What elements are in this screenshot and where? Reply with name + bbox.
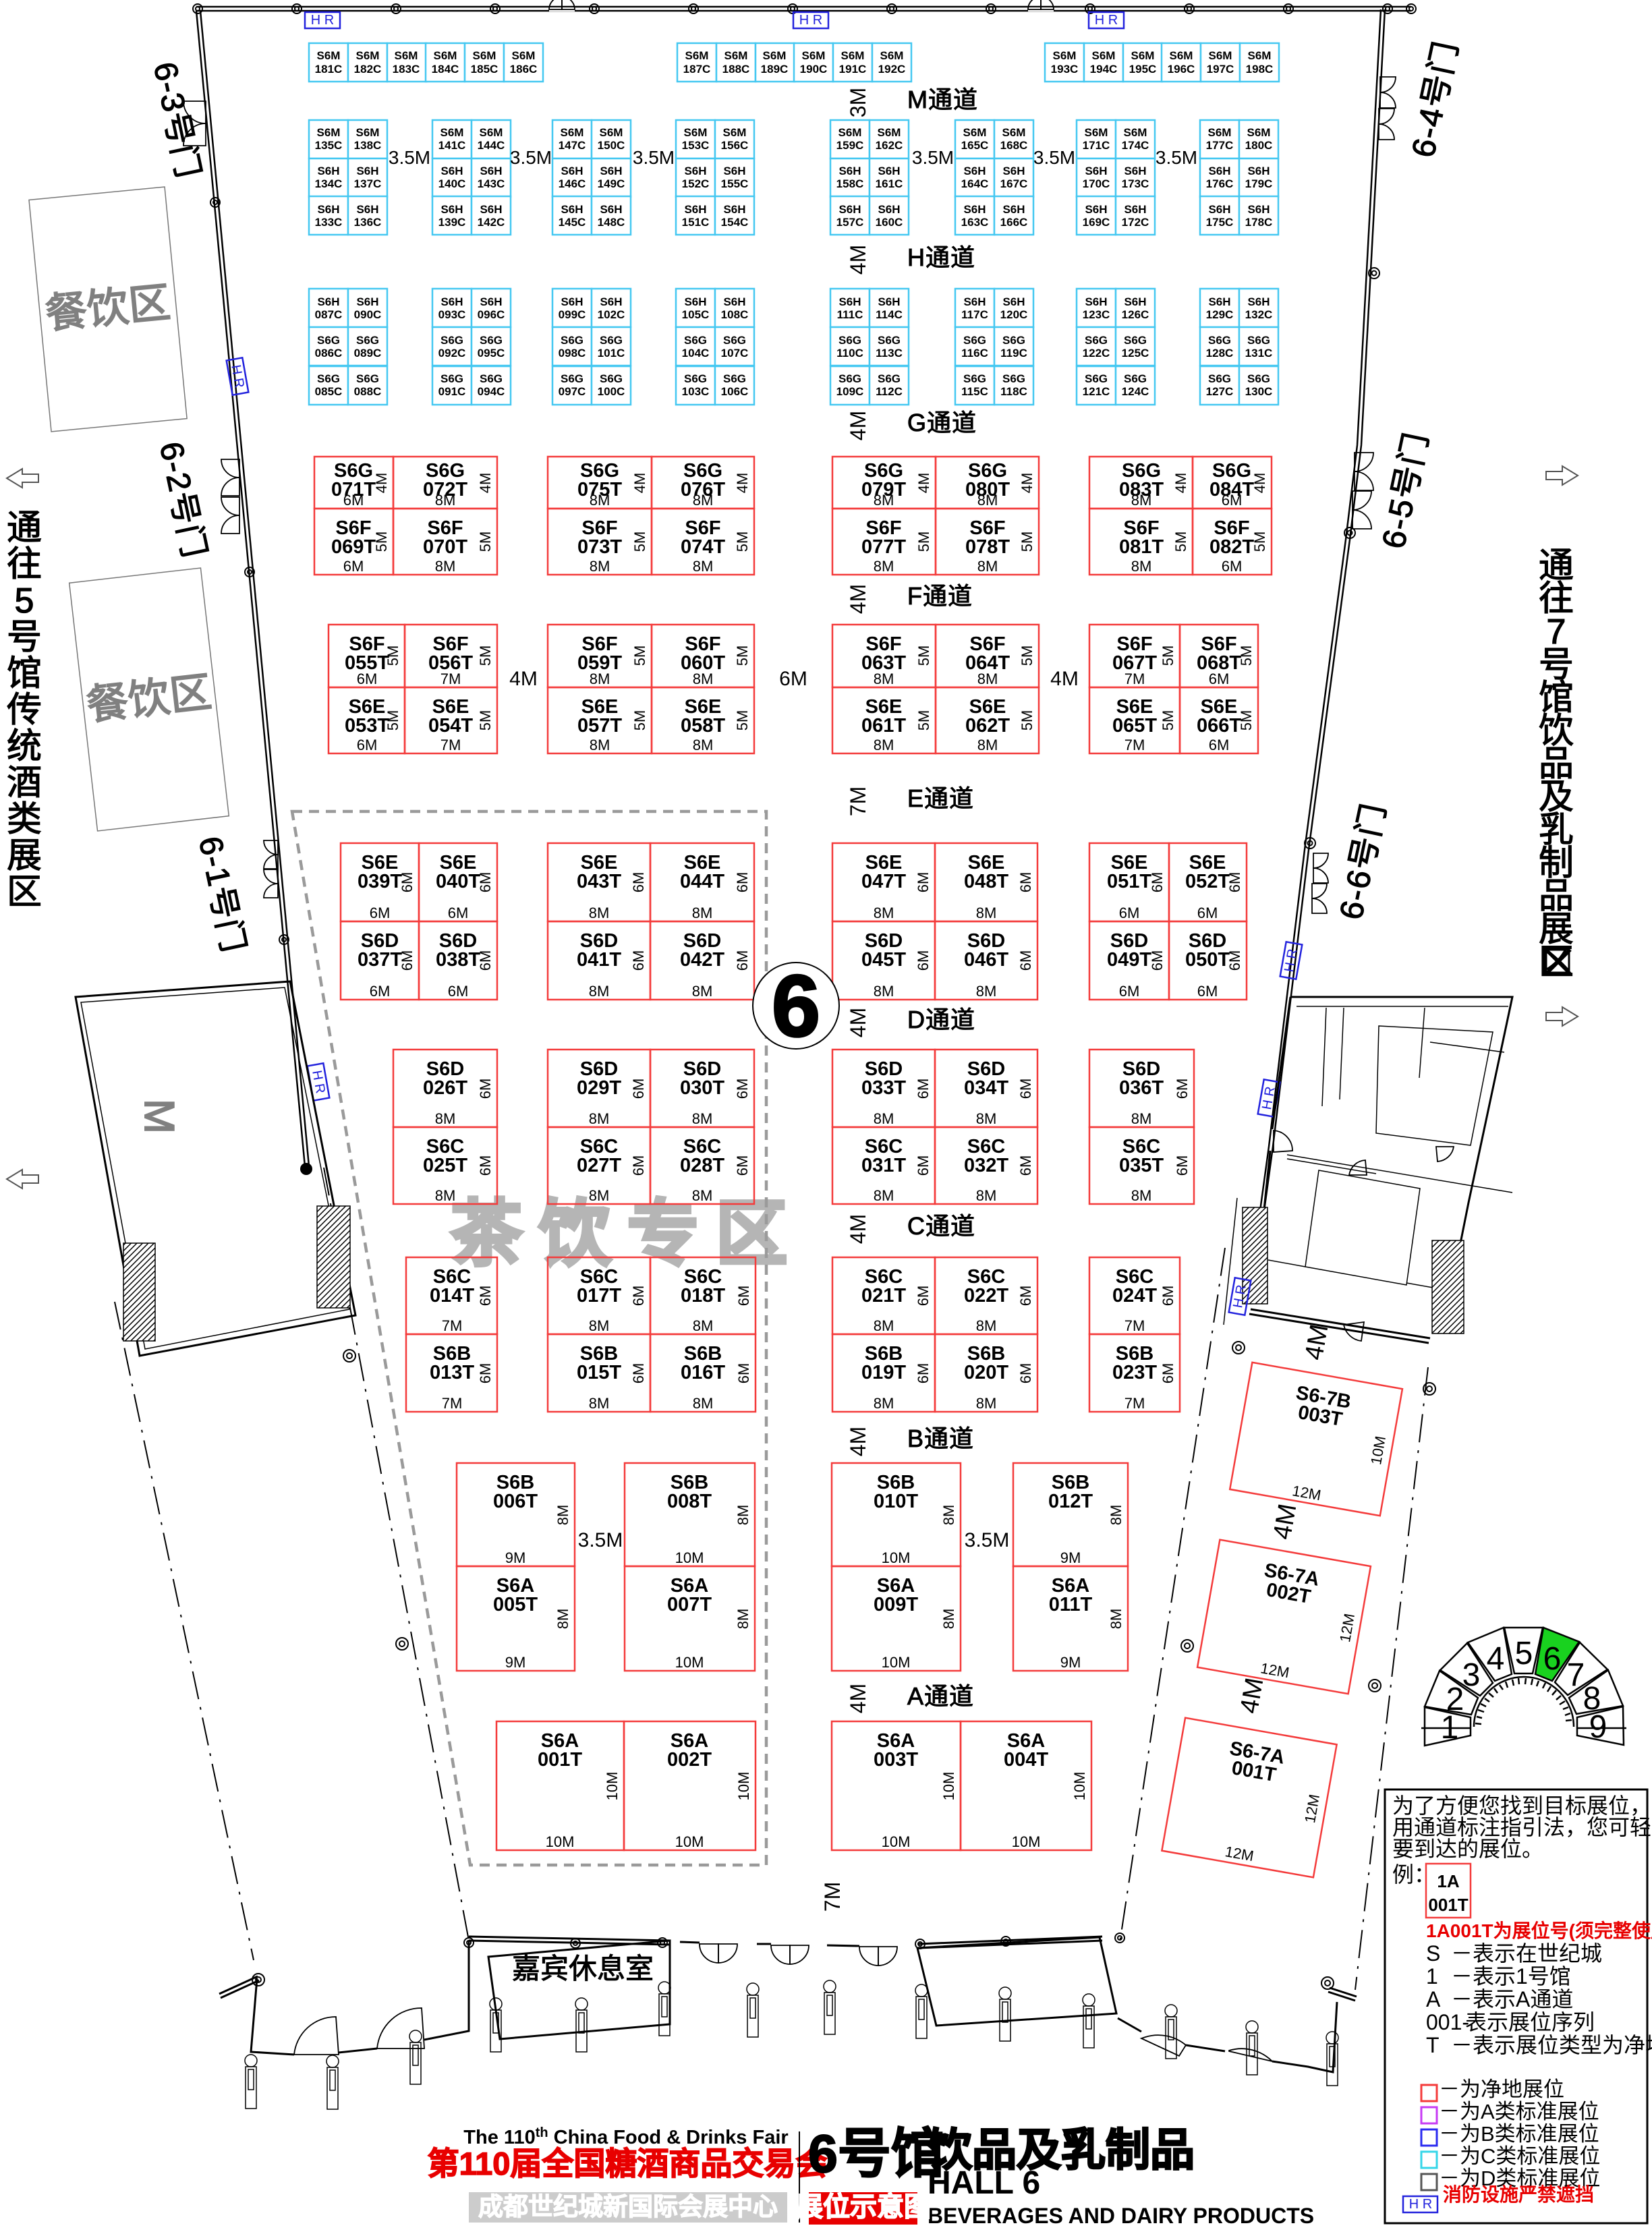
svg-text:9M: 9M xyxy=(505,1549,526,1566)
svg-text:106C: 106C xyxy=(721,385,749,398)
svg-text:183C: 183C xyxy=(393,63,420,76)
svg-text:130C: 130C xyxy=(1245,385,1273,398)
svg-text:6M: 6M xyxy=(1119,983,1140,1000)
svg-text:4M: 4M xyxy=(846,1684,870,1713)
svg-text:8M: 8M xyxy=(589,983,610,1000)
svg-text:5M: 5M xyxy=(1238,646,1255,666)
svg-text:8M: 8M xyxy=(692,905,713,921)
svg-text:6M: 6M xyxy=(1174,1079,1191,1099)
svg-text:M通道: M通道 xyxy=(907,86,978,113)
svg-text:BEVERAGES AND DAIRY PRODUCTS: BEVERAGES AND DAIRY PRODUCTS xyxy=(928,2204,1314,2228)
svg-text:162C: 162C xyxy=(876,139,903,152)
svg-text:S6G: S6G xyxy=(838,334,861,347)
svg-text:006T: 006T xyxy=(493,1491,538,1512)
svg-text:H R: H R xyxy=(311,13,334,28)
svg-text:048T: 048T xyxy=(964,871,1008,892)
svg-text:S6M: S6M xyxy=(1208,126,1232,139)
svg-text:－表示在世纪城: －表示在世纪城 xyxy=(1451,1941,1602,1966)
svg-text:传: 传 xyxy=(7,691,42,730)
svg-text:7M: 7M xyxy=(440,670,461,687)
svg-text:191C: 191C xyxy=(839,63,867,76)
svg-text:6M: 6M xyxy=(1209,670,1230,687)
svg-text:S6G: S6G xyxy=(356,372,379,385)
svg-text:S6H: S6H xyxy=(1208,165,1230,177)
svg-text:8M: 8M xyxy=(1108,1609,1124,1630)
svg-text:S6H: S6H xyxy=(723,203,745,216)
svg-text:001T: 001T xyxy=(538,1749,582,1771)
svg-text:S6G: S6G xyxy=(723,372,746,385)
svg-text:S6H: S6H xyxy=(1085,203,1107,216)
svg-text:8M: 8M xyxy=(874,737,894,753)
svg-text:6M: 6M xyxy=(1119,905,1140,921)
svg-text:H R: H R xyxy=(799,13,822,28)
svg-text:S6G: S6G xyxy=(356,334,379,347)
svg-text:6M: 6M xyxy=(399,872,416,893)
svg-text:8M: 8M xyxy=(976,983,997,1000)
svg-text:086C: 086C xyxy=(315,347,343,360)
svg-text:S6H: S6H xyxy=(317,165,339,177)
svg-text:8M: 8M xyxy=(693,558,714,575)
svg-text:025T: 025T xyxy=(423,1155,467,1176)
svg-text:8M: 8M xyxy=(590,737,610,753)
svg-text:S6G: S6G xyxy=(878,334,901,347)
svg-text:8M: 8M xyxy=(874,1317,894,1334)
svg-text:S6H: S6H xyxy=(723,295,745,308)
svg-text:S6H: S6H xyxy=(480,165,502,177)
svg-text:6: 6 xyxy=(1543,1641,1562,1677)
svg-text:S6H: S6H xyxy=(1247,203,1270,216)
svg-text:002T: 002T xyxy=(667,1749,712,1771)
svg-text:8M: 8M xyxy=(589,1395,610,1412)
svg-text:182C: 182C xyxy=(354,63,382,76)
svg-text:6M: 6M xyxy=(370,983,391,1000)
svg-text:S6G: S6G xyxy=(480,334,503,347)
svg-text:032T: 032T xyxy=(964,1155,1008,1176)
svg-text:187C: 187C xyxy=(683,63,711,76)
svg-text:号: 号 xyxy=(7,618,42,657)
svg-text:119C: 119C xyxy=(1000,347,1027,360)
svg-text:6M: 6M xyxy=(1174,1155,1191,1176)
svg-text:S6H: S6H xyxy=(356,165,378,177)
svg-text:S6H: S6H xyxy=(356,295,378,308)
svg-text:8M: 8M xyxy=(940,1505,957,1526)
svg-text:110C: 110C xyxy=(836,347,863,360)
svg-text:1: 1 xyxy=(1426,1964,1438,1988)
svg-text:例：: 例： xyxy=(1392,1862,1435,1887)
svg-text:－为B类标准展位: －为B类标准展位 xyxy=(1439,2122,1599,2146)
svg-text:S6H: S6H xyxy=(963,203,986,216)
svg-text:124C: 124C xyxy=(1122,385,1149,398)
svg-text:120C: 120C xyxy=(1000,308,1028,321)
svg-text:S6H: S6H xyxy=(963,295,986,308)
svg-text:061T: 061T xyxy=(861,715,906,737)
svg-text:8M: 8M xyxy=(693,1395,714,1412)
svg-text:S6M: S6M xyxy=(473,49,496,62)
svg-text:S6G: S6G xyxy=(1085,372,1108,385)
svg-text:10M: 10M xyxy=(675,1549,704,1566)
svg-text:093C: 093C xyxy=(438,308,466,321)
svg-text:A通道: A通道 xyxy=(907,1682,974,1710)
svg-text:8M: 8M xyxy=(554,1505,571,1526)
svg-text:022T: 022T xyxy=(964,1285,1008,1307)
svg-text:082T: 082T xyxy=(1209,536,1254,558)
svg-text:－表示A通道: －表示A通道 xyxy=(1451,1987,1573,2011)
svg-text:6M: 6M xyxy=(630,1363,647,1384)
svg-text:6M: 6M xyxy=(1017,1079,1034,1099)
svg-text:S6M: S6M xyxy=(1124,126,1147,139)
svg-text:094C: 094C xyxy=(478,385,505,398)
svg-text:S6G: S6G xyxy=(1247,334,1270,347)
svg-text:6M: 6M xyxy=(1149,950,1166,971)
svg-text:统: 统 xyxy=(7,727,42,766)
svg-text:S6G: S6G xyxy=(684,334,707,347)
svg-text:132C: 132C xyxy=(1245,308,1273,321)
svg-text:007T: 007T xyxy=(667,1594,712,1615)
svg-text:146C: 146C xyxy=(559,177,586,190)
svg-text:044T: 044T xyxy=(680,871,724,892)
svg-text:131C: 131C xyxy=(1245,347,1273,360)
svg-text:S6G: S6G xyxy=(561,334,583,347)
svg-text:8M: 8M xyxy=(1131,492,1152,509)
svg-text:6M: 6M xyxy=(448,983,469,1000)
svg-text:10M: 10M xyxy=(882,1833,911,1850)
svg-text:S6G: S6G xyxy=(1208,334,1231,347)
svg-text:052T: 052T xyxy=(1185,871,1230,892)
svg-text:154C: 154C xyxy=(721,216,749,229)
svg-text:6M: 6M xyxy=(630,1079,647,1099)
svg-text:4M: 4M xyxy=(1172,473,1189,494)
svg-text:179C: 179C xyxy=(1245,177,1273,190)
svg-text:S6H: S6H xyxy=(317,203,339,216)
svg-text:087C: 087C xyxy=(315,308,343,321)
svg-text:S6M: S6M xyxy=(440,126,464,139)
svg-text:148C: 148C xyxy=(598,216,625,229)
svg-text:073T: 073T xyxy=(577,536,622,558)
svg-text:5M: 5M xyxy=(915,710,932,731)
svg-text:S6H: S6H xyxy=(480,295,502,308)
svg-text:125C: 125C xyxy=(1122,347,1149,360)
svg-text:10M: 10M xyxy=(1071,1772,1088,1801)
svg-text:088C: 088C xyxy=(354,385,382,398)
svg-text:成都世纪城新国际会展中心: 成都世纪城新国际会展中心 xyxy=(478,2193,778,2221)
svg-text:G通道: G通道 xyxy=(907,409,977,436)
svg-text:S6G: S6G xyxy=(1247,372,1270,385)
svg-text:8M: 8M xyxy=(589,905,610,921)
svg-text:HALL 6: HALL 6 xyxy=(928,2165,1040,2201)
svg-text:8M: 8M xyxy=(874,1110,894,1127)
svg-text:149C: 149C xyxy=(598,177,625,190)
svg-text:S6G: S6G xyxy=(480,372,503,385)
svg-text:133C: 133C xyxy=(315,216,343,229)
svg-text:101C: 101C xyxy=(598,347,625,360)
svg-text:4M: 4M xyxy=(846,411,870,440)
svg-text:6M: 6M xyxy=(477,1079,494,1099)
svg-text:6M: 6M xyxy=(915,1363,932,1384)
svg-text:展: 展 xyxy=(7,836,42,876)
svg-text:5M: 5M xyxy=(1160,646,1176,666)
svg-text:029T: 029T xyxy=(577,1077,621,1099)
svg-text:8M: 8M xyxy=(977,737,998,753)
svg-text:054T: 054T xyxy=(428,715,473,737)
svg-text:S6H: S6H xyxy=(878,203,900,216)
svg-text:S6G: S6G xyxy=(440,372,463,385)
svg-text:5M: 5M xyxy=(384,710,401,731)
svg-text:173C: 173C xyxy=(1122,177,1149,190)
svg-text:169C: 169C xyxy=(1083,216,1110,229)
svg-text:4M: 4M xyxy=(631,473,648,494)
svg-text:8M: 8M xyxy=(435,1110,456,1127)
svg-text:－为C类标准展位: －为C类标准展位 xyxy=(1439,2144,1600,2168)
svg-text:6M: 6M xyxy=(630,1155,647,1176)
svg-text:8M: 8M xyxy=(976,905,997,921)
svg-text:8M: 8M xyxy=(874,558,894,575)
svg-text:170C: 170C xyxy=(1083,177,1110,190)
svg-text:S6H: S6H xyxy=(684,165,706,177)
svg-text:7M: 7M xyxy=(846,786,870,816)
svg-text:113C: 113C xyxy=(876,347,903,360)
svg-text:S6H: S6H xyxy=(600,165,622,177)
svg-text:5M: 5M xyxy=(631,710,648,731)
svg-text:S6H: S6H xyxy=(561,165,583,177)
svg-text:6M: 6M xyxy=(1209,737,1230,753)
svg-text:001T: 001T xyxy=(1428,1895,1468,1915)
svg-text:8M: 8M xyxy=(977,670,998,687)
svg-text:S6H: S6H xyxy=(963,165,986,177)
svg-text:S6G: S6G xyxy=(600,334,623,347)
svg-text:065T: 065T xyxy=(1112,715,1157,737)
svg-text:S6M: S6M xyxy=(395,49,418,62)
svg-text:10M: 10M xyxy=(604,1772,621,1801)
svg-text:8M: 8M xyxy=(693,492,714,509)
svg-text:143C: 143C xyxy=(478,177,505,190)
svg-text:5M: 5M xyxy=(477,646,494,666)
svg-text:6M: 6M xyxy=(735,1363,752,1384)
svg-text:034T: 034T xyxy=(964,1077,1008,1099)
svg-text:8M: 8M xyxy=(874,905,894,921)
svg-text:S6H: S6H xyxy=(356,203,378,216)
svg-text:005T: 005T xyxy=(493,1594,538,1615)
svg-text:6M: 6M xyxy=(915,1079,932,1099)
svg-text:041T: 041T xyxy=(577,949,621,971)
svg-text:189C: 189C xyxy=(761,63,789,76)
svg-text:6M: 6M xyxy=(1017,872,1034,893)
svg-text:S6H: S6H xyxy=(1124,295,1146,308)
svg-text:7M: 7M xyxy=(440,737,461,753)
svg-text:135C: 135C xyxy=(315,139,343,152)
svg-text:077T: 077T xyxy=(861,536,906,558)
svg-text:2: 2 xyxy=(1446,1682,1464,1717)
svg-text:057T: 057T xyxy=(577,715,622,737)
svg-text:011T: 011T xyxy=(1049,1594,1093,1615)
svg-text:7M: 7M xyxy=(1124,1317,1145,1334)
svg-text:117C: 117C xyxy=(961,308,988,321)
svg-text:078T: 078T xyxy=(965,536,1010,558)
svg-text:S6M: S6M xyxy=(1248,49,1272,62)
svg-text:S6M: S6M xyxy=(723,126,747,139)
svg-text:6M: 6M xyxy=(357,670,378,687)
svg-text:10M: 10M xyxy=(546,1833,575,1850)
svg-text:108C: 108C xyxy=(721,308,749,321)
svg-text:3: 3 xyxy=(1462,1657,1481,1693)
svg-text:S6G: S6G xyxy=(1208,372,1231,385)
svg-text:066T: 066T xyxy=(1197,715,1241,737)
svg-text:－为净地展位: －为净地展位 xyxy=(1439,2078,1564,2101)
svg-text:190C: 190C xyxy=(800,63,828,76)
svg-text:069T: 069T xyxy=(331,536,376,558)
svg-text:3.5M: 3.5M xyxy=(1033,147,1075,168)
svg-text:5M: 5M xyxy=(1019,646,1035,666)
svg-text:017T: 017T xyxy=(577,1285,621,1307)
svg-text:8M: 8M xyxy=(976,1110,997,1127)
svg-text:134C: 134C xyxy=(315,177,343,190)
svg-text:用通道标注指引法，您可轻松找到: 用通道标注指引法，您可轻松找到 xyxy=(1392,1815,1652,1839)
svg-text:8M: 8M xyxy=(590,492,610,509)
svg-text:139C: 139C xyxy=(438,216,466,229)
svg-text:6M: 6M xyxy=(477,1155,494,1176)
svg-text:140C: 140C xyxy=(438,177,466,190)
svg-text:S6G: S6G xyxy=(838,372,861,385)
svg-text:045T: 045T xyxy=(861,949,906,971)
svg-text:S6G: S6G xyxy=(878,372,901,385)
svg-text:003T: 003T xyxy=(874,1749,918,1771)
svg-text:001-: 001- xyxy=(1426,2010,1469,2034)
svg-text:S6G: S6G xyxy=(440,334,463,347)
svg-text:185C: 185C xyxy=(471,63,499,76)
svg-text:5M: 5M xyxy=(1019,710,1035,731)
svg-text:4M: 4M xyxy=(509,668,538,690)
svg-text:138C: 138C xyxy=(354,139,382,152)
svg-text:7M: 7M xyxy=(1124,1395,1145,1412)
svg-text:展位示意图: 展位示意图 xyxy=(796,2192,931,2222)
svg-text:013T: 013T xyxy=(430,1362,474,1383)
svg-text:8M: 8M xyxy=(693,1317,714,1334)
svg-text:175C: 175C xyxy=(1206,216,1234,229)
svg-text:8M: 8M xyxy=(589,1187,610,1204)
svg-text:193C: 193C xyxy=(1051,63,1079,76)
svg-text:144C: 144C xyxy=(478,139,505,152)
svg-text:184C: 184C xyxy=(432,63,459,76)
svg-text:194C: 194C xyxy=(1090,63,1118,76)
svg-text:7M: 7M xyxy=(1124,670,1145,687)
svg-text:114C: 114C xyxy=(876,308,903,321)
svg-text:S6M: S6M xyxy=(963,126,987,139)
svg-text:023T: 023T xyxy=(1112,1362,1157,1383)
svg-text:H R: H R xyxy=(1409,2197,1432,2212)
svg-text:6M: 6M xyxy=(1226,872,1243,893)
svg-text:085C: 085C xyxy=(315,385,343,398)
svg-text:107C: 107C xyxy=(721,347,749,360)
svg-text:S6H: S6H xyxy=(600,295,622,308)
svg-text:099C: 099C xyxy=(559,308,586,321)
svg-text:129C: 129C xyxy=(1206,308,1234,321)
svg-text:S6G: S6G xyxy=(1085,334,1108,347)
svg-text:105C: 105C xyxy=(682,308,710,321)
svg-text:S6H: S6H xyxy=(723,165,745,177)
svg-text:S6M: S6M xyxy=(434,49,457,62)
svg-text:S6H: S6H xyxy=(480,203,502,216)
svg-text:112C: 112C xyxy=(876,385,903,398)
svg-text:166C: 166C xyxy=(1000,216,1028,229)
svg-text:8M: 8M xyxy=(874,492,894,509)
svg-text:186C: 186C xyxy=(510,63,538,76)
svg-text:050T: 050T xyxy=(1185,949,1230,971)
svg-text:S6M: S6M xyxy=(512,49,536,62)
svg-text:123C: 123C xyxy=(1083,308,1110,321)
svg-text:S6M: S6M xyxy=(317,49,341,62)
svg-text:5M: 5M xyxy=(1019,532,1035,552)
svg-text:S6M: S6M xyxy=(1209,49,1232,62)
svg-text:S6M: S6M xyxy=(684,126,708,139)
svg-text:026T: 026T xyxy=(423,1077,467,1099)
svg-text:S6H: S6H xyxy=(878,165,900,177)
svg-text:8M: 8M xyxy=(692,1110,713,1127)
svg-text:049T: 049T xyxy=(1107,949,1151,971)
svg-text:043T: 043T xyxy=(577,871,621,892)
svg-text:8M: 8M xyxy=(976,1395,997,1412)
svg-text:S6H: S6H xyxy=(600,203,622,216)
svg-text:6M: 6M xyxy=(915,872,932,893)
svg-text:164C: 164C xyxy=(961,177,989,190)
svg-text:8M: 8M xyxy=(874,1395,894,1412)
svg-text:004T: 004T xyxy=(1004,1749,1048,1771)
svg-text:为了方便您找到目标展位，编号采: 为了方便您找到目标展位，编号采 xyxy=(1392,1794,1652,1818)
svg-text:8M: 8M xyxy=(940,1609,957,1630)
svg-text:7M: 7M xyxy=(442,1317,463,1334)
svg-text:3.5M: 3.5M xyxy=(510,147,552,168)
svg-text:表示展位序列: 表示展位序列 xyxy=(1465,2010,1595,2034)
svg-text:031T: 031T xyxy=(861,1155,906,1176)
svg-text:062T: 062T xyxy=(965,715,1010,737)
svg-text:097C: 097C xyxy=(559,385,586,398)
svg-text:S6G: S6G xyxy=(1124,372,1147,385)
svg-text:6M: 6M xyxy=(734,1155,751,1176)
svg-text:4M: 4M xyxy=(373,473,390,494)
svg-text:A: A xyxy=(1426,1987,1441,2011)
svg-text:10M: 10M xyxy=(675,1833,704,1850)
svg-text:171C: 171C xyxy=(1083,139,1110,152)
svg-text:016T: 016T xyxy=(681,1362,725,1383)
svg-text:S6M: S6M xyxy=(880,49,904,62)
svg-text:6M: 6M xyxy=(734,872,751,893)
svg-text:6M: 6M xyxy=(477,872,494,893)
svg-text:S6G: S6G xyxy=(723,334,746,347)
svg-text:S6H: S6H xyxy=(838,295,861,308)
svg-text:6M: 6M xyxy=(1017,950,1034,971)
svg-text:H通道: H通道 xyxy=(907,244,975,271)
svg-text:6M: 6M xyxy=(1226,950,1243,971)
svg-text:S6M: S6M xyxy=(685,49,709,62)
svg-text:S6G: S6G xyxy=(561,372,583,385)
svg-text:096C: 096C xyxy=(478,308,505,321)
svg-text:150C: 150C xyxy=(598,139,625,152)
svg-text:M: M xyxy=(136,1099,182,1134)
svg-text:S6M: S6M xyxy=(763,49,787,62)
svg-text:116C: 116C xyxy=(961,347,988,360)
svg-text:9: 9 xyxy=(1589,1709,1607,1745)
svg-text:类: 类 xyxy=(7,800,42,839)
svg-text:5M: 5M xyxy=(477,710,494,731)
svg-text:109C: 109C xyxy=(836,385,864,398)
svg-text:嘉宾休息室: 嘉宾休息室 xyxy=(512,1953,654,1984)
svg-text:6M: 6M xyxy=(1149,872,1166,893)
svg-text:009T: 009T xyxy=(874,1594,918,1615)
svg-text:S6M: S6M xyxy=(1002,126,1026,139)
svg-text:S6G: S6G xyxy=(684,372,707,385)
svg-text:8M: 8M xyxy=(735,1505,751,1526)
svg-text:S6H: S6H xyxy=(1085,295,1107,308)
svg-text:3.5M: 3.5M xyxy=(578,1529,623,1551)
svg-text:176C: 176C xyxy=(1206,177,1234,190)
